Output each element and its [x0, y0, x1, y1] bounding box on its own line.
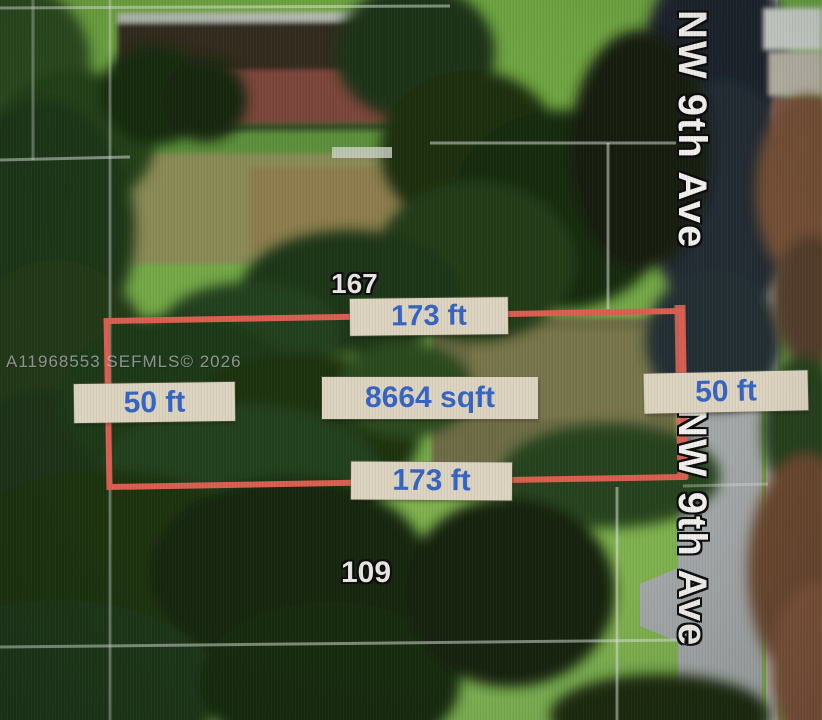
- aerial-lot-photo: A11968553 SEFMLS© 2026 NW 9th Ave NW 9th…: [0, 0, 822, 720]
- lot-frontage-top-label: 173 ft: [350, 297, 508, 336]
- address-number-north: 167: [331, 268, 378, 300]
- street-name-bottom: NW 9th Ave: [672, 408, 712, 647]
- address-number-south: 109: [341, 556, 391, 590]
- lot-depth-left-label: 50 ft: [74, 382, 236, 423]
- lot-area-label: 8664 sqft: [322, 377, 538, 419]
- lot-depth-right-label: 50 ft: [644, 370, 809, 413]
- lot-frontage-bottom-label: 173 ft: [351, 461, 512, 500]
- mls-watermark: A11968553 SEFMLS© 2026: [6, 352, 242, 372]
- street-name-top: NW 9th Ave: [672, 10, 712, 249]
